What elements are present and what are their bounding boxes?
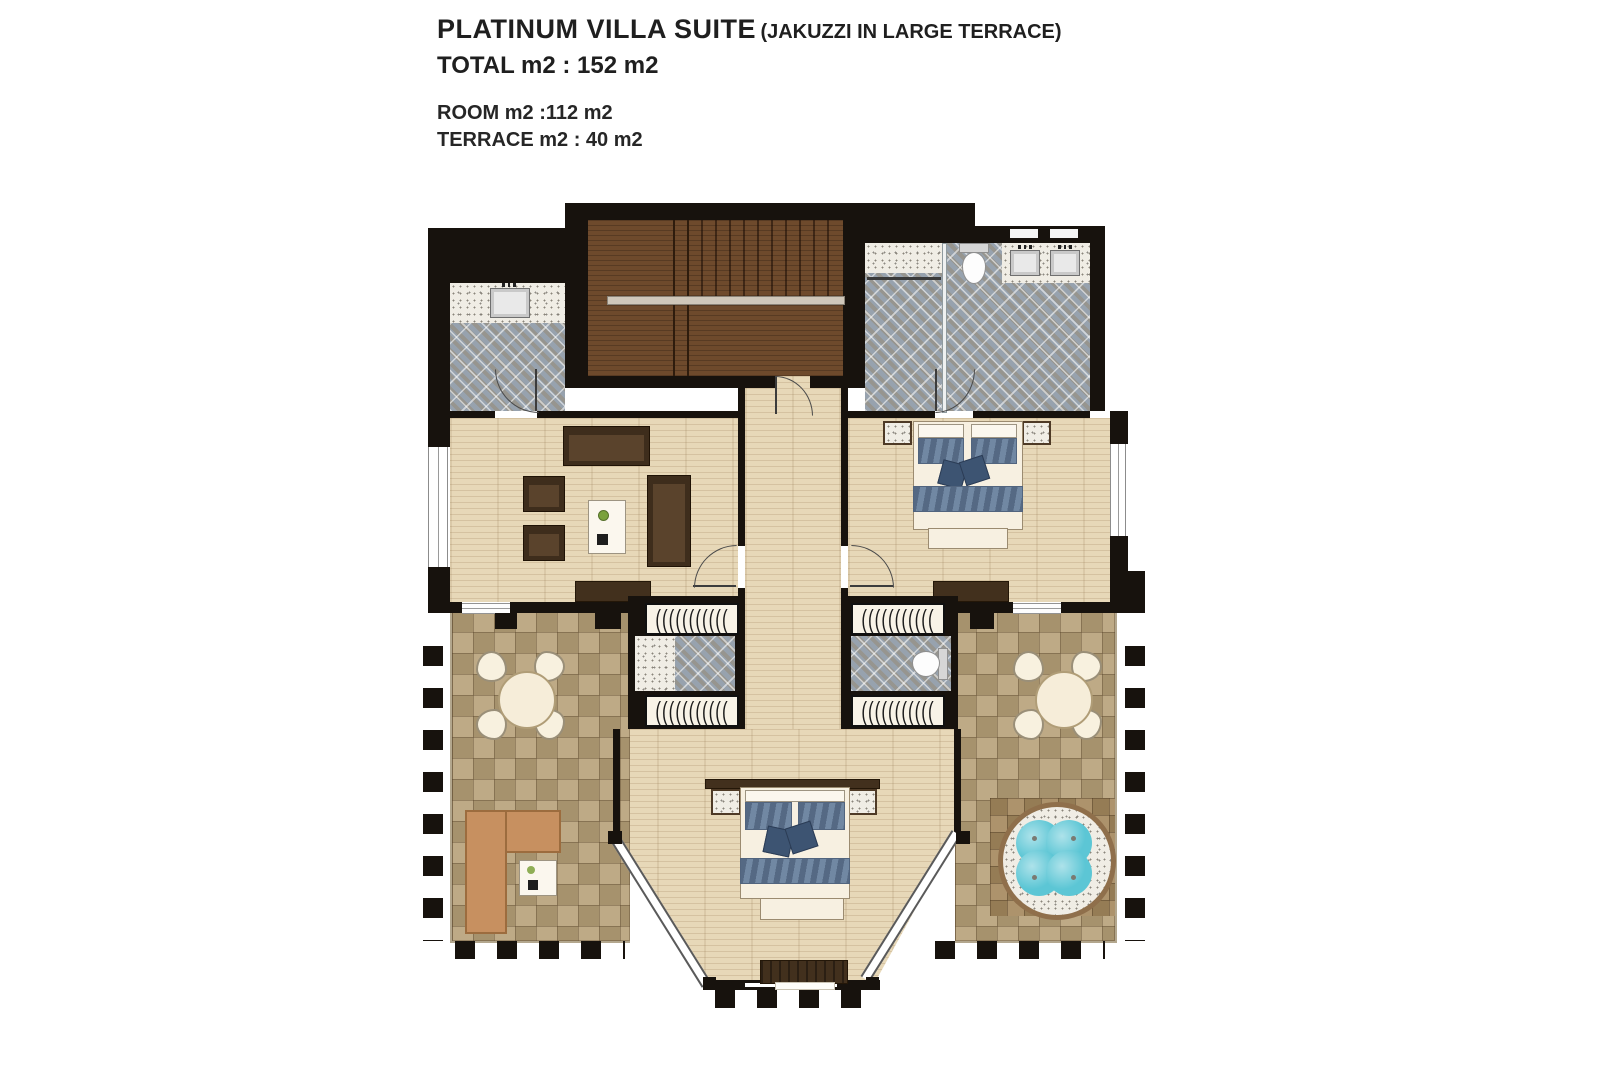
suite-subtitle: (JAKUZZI IN LARGE TERRACE) <box>760 21 1061 43</box>
wall-bedroom-corner-pillar <box>1110 571 1145 613</box>
floor-plan-page: PLATINUM VILLA SUITE (JAKUZZI IN LARGE T… <box>0 0 1618 1080</box>
wall-bedroom-right-lower <box>1110 536 1128 572</box>
bedroom-nightstand-right <box>1022 421 1051 445</box>
jacuzzi-jet <box>1071 875 1076 880</box>
wardrobe-right-bottom: ((((((((((( <box>851 695 945 727</box>
bay-dresser-rug <box>775 982 835 990</box>
terrace-left-pillar-1 <box>495 613 517 629</box>
bath2-towel-rail <box>867 277 941 280</box>
corridor-floor <box>745 376 841 729</box>
room-area-label: ROOM m2 :112 m2 <box>437 102 1062 125</box>
jacuzzi-jet <box>1071 836 1076 841</box>
wall-bay-right <box>954 729 961 841</box>
bed-runner <box>913 486 1023 512</box>
bath2-faucet-1 <box>1018 245 1032 249</box>
wall-bedroom-right-upper <box>1110 411 1128 444</box>
page-title: PLATINUM VILLA SUITE (JAKUZZI IN LARGE T… <box>437 14 1062 45</box>
wall-stair-left <box>565 223 588 388</box>
crenellation-left <box>423 646 443 941</box>
living-coffee-table <box>588 500 626 554</box>
wall-bay-left <box>613 729 620 841</box>
terrace-right-pillar-1 <box>970 613 994 629</box>
terrace-right-chair-1 <box>1013 651 1044 682</box>
wall-living-bottom-1 <box>428 602 462 613</box>
bay-post-1 <box>608 831 622 844</box>
bath2-faucet-2 <box>1058 245 1072 249</box>
stair-treads <box>673 220 840 298</box>
terrace-area-label: TERRACE m2 : 40 m2 <box>437 129 1062 152</box>
wall-stair-right <box>843 223 865 388</box>
bath2-window-2 <box>1050 229 1078 238</box>
terrace-left-table <box>498 671 556 729</box>
crenellation-bottom-right <box>935 941 1105 959</box>
crenellation-bay <box>715 990 865 1008</box>
plan-header: PLATINUM VILLA SUITE (JAKUZZI IN LARGE T… <box>437 14 1062 152</box>
wall-corridor-left-upper <box>738 388 745 546</box>
bedroom-window <box>1110 444 1126 536</box>
bedroom-bed <box>913 421 1023 530</box>
wall-mid-top-4 <box>973 411 1090 418</box>
bed2-nightstand-left <box>711 789 741 815</box>
bed2 <box>740 787 850 899</box>
terrace-right-door <box>1013 603 1061 614</box>
living-armchair-2 <box>523 525 565 561</box>
spacer <box>437 80 1062 98</box>
closet-block-left: ((((((((((( ((((((((((( <box>628 596 740 729</box>
wall-stair-bottom-left <box>588 376 775 388</box>
terrace-side-table <box>519 860 557 896</box>
wardrobe-left-top: ((((((((((( <box>645 603 739 635</box>
hanger-icons: ((((((((((( <box>655 606 728 632</box>
crenellation-right <box>1125 646 1145 941</box>
floor-plan: ((((((((((( ((((((((((( ((((((((((( ((((… <box>410 198 1170 1010</box>
side-table-tray <box>528 880 538 890</box>
stair-rail <box>607 296 845 305</box>
bath1-faucet <box>502 283 516 287</box>
wardrobe-right-top: ((((((((((( <box>851 603 945 635</box>
wall-bath1-left <box>428 283 450 411</box>
bedroom-bench <box>928 528 1008 549</box>
wall-corridor-right-upper <box>841 388 848 546</box>
coffee-table-plant <box>598 510 609 521</box>
living-sofa-right <box>647 475 691 567</box>
hanger-icons: ((((((((((( <box>861 698 934 724</box>
total-area-label: TOTAL m2 : 152 m2 <box>437 52 1062 80</box>
hanger-icons: ((((((((((( <box>861 606 934 632</box>
bay-dresser <box>760 960 848 984</box>
shower-left-pad <box>635 636 675 691</box>
wall-bath1-top <box>428 228 565 283</box>
bath2-shower-pad <box>865 243 943 273</box>
closet-block-right: ((((((((((( ((((((((((( <box>846 596 958 729</box>
jacuzzi-tub <box>1016 820 1092 896</box>
bed2-pillow-white <box>745 790 845 802</box>
terrace-sofa-vertical <box>465 810 507 934</box>
bed-pillow-blue-1 <box>918 438 964 464</box>
bed2-bench <box>760 898 844 920</box>
wall-mid-top-2 <box>537 411 738 418</box>
shower-left-tile <box>675 636 735 691</box>
bay-post-4 <box>956 831 970 844</box>
terrace-left-chair-1 <box>476 651 507 682</box>
bath1-sink <box>490 288 530 318</box>
wardrobe-left-bottom: ((((((((((( <box>645 695 739 727</box>
wall-bath2-right <box>1090 226 1105 411</box>
bath2-sink-2 <box>1050 250 1080 276</box>
bed2-nightstand-right <box>847 789 877 815</box>
living-sofa-top <box>563 426 650 466</box>
terrace-left-pillar-2 <box>595 613 621 629</box>
bed-pillow-white-2 <box>971 424 1017 438</box>
wall-bedroom-bottom-2 <box>1061 602 1110 613</box>
bed2-runner <box>740 858 850 884</box>
bath2-sink-1 <box>1010 250 1040 276</box>
bed-pillow-white-1 <box>918 424 964 438</box>
jacuzzi-jet <box>1032 875 1037 880</box>
side-table-plant <box>527 866 535 874</box>
hanger-icons: ((((((((((( <box>655 698 728 724</box>
crenellation-bottom-left <box>455 941 625 959</box>
wall-living-left-upper <box>428 411 450 447</box>
bath2-window-1 <box>1010 229 1038 238</box>
living-armchair-1 <box>523 476 565 512</box>
coffee-table-tray <box>597 534 608 545</box>
wall-mid-top-3 <box>848 411 935 418</box>
suite-title: PLATINUM VILLA SUITE <box>437 14 756 44</box>
living-room-window <box>428 447 448 567</box>
wall-stair-bottom-right <box>810 376 843 388</box>
terrace-right-table <box>1035 671 1093 729</box>
jacuzzi-jet <box>1032 836 1037 841</box>
bedroom-nightstand-left <box>883 421 912 445</box>
